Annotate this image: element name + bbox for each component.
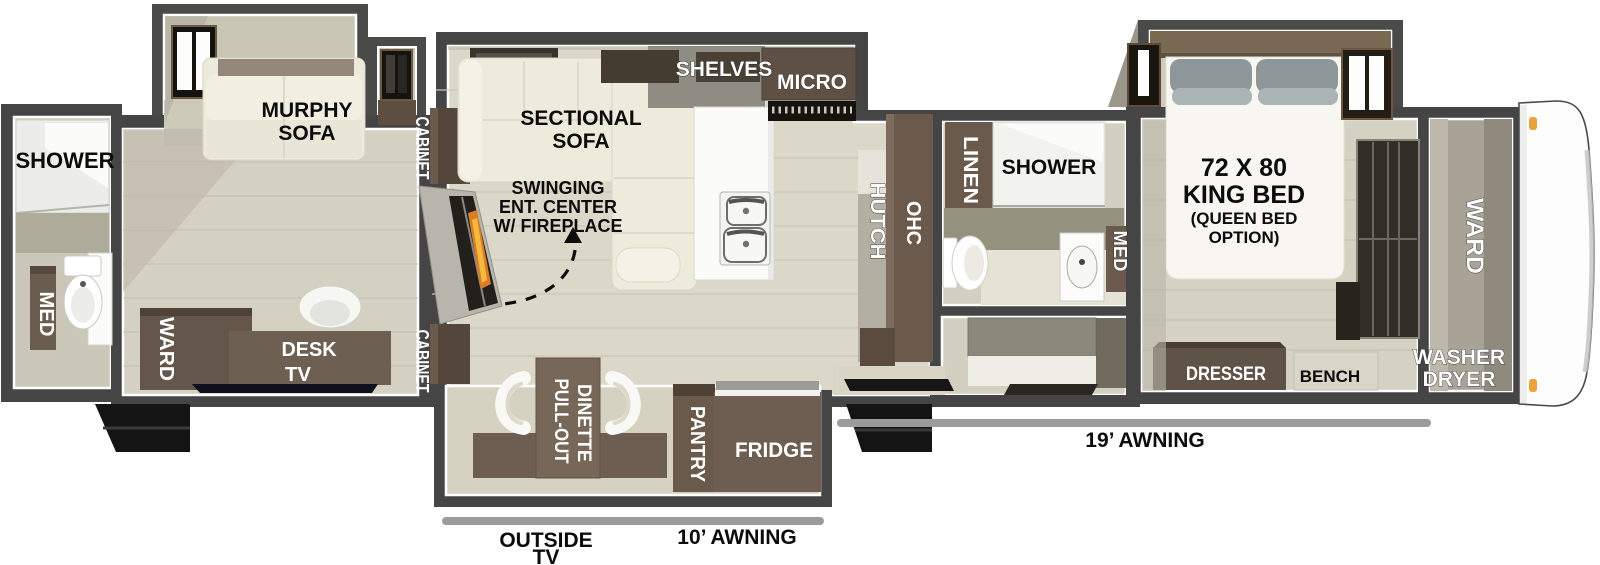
svg-text:W/ FIREPLACE: W/ FIREPLACE xyxy=(494,216,623,236)
svg-text:10’ AWNING: 10’ AWNING xyxy=(677,526,796,549)
svg-text:MURPHY: MURPHY xyxy=(261,99,352,122)
svg-text:SWINGING: SWINGING xyxy=(512,178,605,198)
svg-text:19’ AWNING: 19’ AWNING xyxy=(1085,429,1204,452)
svg-text:DRESSER: DRESSER xyxy=(1186,364,1266,385)
svg-text:MED: MED xyxy=(35,292,57,337)
svg-text:BENCH: BENCH xyxy=(1300,367,1360,386)
svg-text:WASHER: WASHER xyxy=(1413,346,1505,369)
svg-text:TV: TV xyxy=(533,546,560,565)
svg-text:WARD: WARD xyxy=(1461,198,1488,274)
svg-text:SOFA: SOFA xyxy=(552,130,609,153)
svg-text:DRYER: DRYER xyxy=(1423,368,1496,391)
svg-text:SOFA: SOFA xyxy=(278,122,335,145)
svg-text:DESK: DESK xyxy=(282,339,338,361)
svg-text:OHC: OHC xyxy=(902,201,924,245)
svg-text:PULL-OUT: PULL-OUT xyxy=(550,379,571,464)
svg-text:HUTCH: HUTCH xyxy=(866,183,888,260)
svg-text:OPTION): OPTION) xyxy=(1209,228,1280,247)
svg-text:DINETTE: DINETTE xyxy=(573,384,594,462)
svg-text:(QUEEN BED: (QUEEN BED xyxy=(1191,209,1298,228)
svg-text:LINEN: LINEN xyxy=(959,136,981,204)
svg-text:CABINET: CABINET xyxy=(412,330,432,393)
svg-text:SHOWER: SHOWER xyxy=(1002,156,1097,179)
svg-text:SHELVES: SHELVES xyxy=(676,58,772,81)
svg-text:MED: MED xyxy=(1110,231,1130,272)
svg-text:PANTRY: PANTRY xyxy=(686,406,708,483)
svg-text:ENT. CENTER: ENT. CENTER xyxy=(499,197,617,217)
svg-text:WARD: WARD xyxy=(155,317,177,381)
svg-text:TV: TV xyxy=(285,364,312,386)
svg-text:KING BED: KING BED xyxy=(1183,181,1305,209)
svg-text:72 X 80: 72 X 80 xyxy=(1201,154,1287,182)
svg-text:SECTIONAL: SECTIONAL xyxy=(520,107,642,130)
svg-text:FRIDGE: FRIDGE xyxy=(735,439,813,462)
svg-text:CABINET: CABINET xyxy=(412,117,432,180)
svg-text:MICRO: MICRO xyxy=(777,71,847,94)
svg-text:SHOWER: SHOWER xyxy=(16,148,115,173)
